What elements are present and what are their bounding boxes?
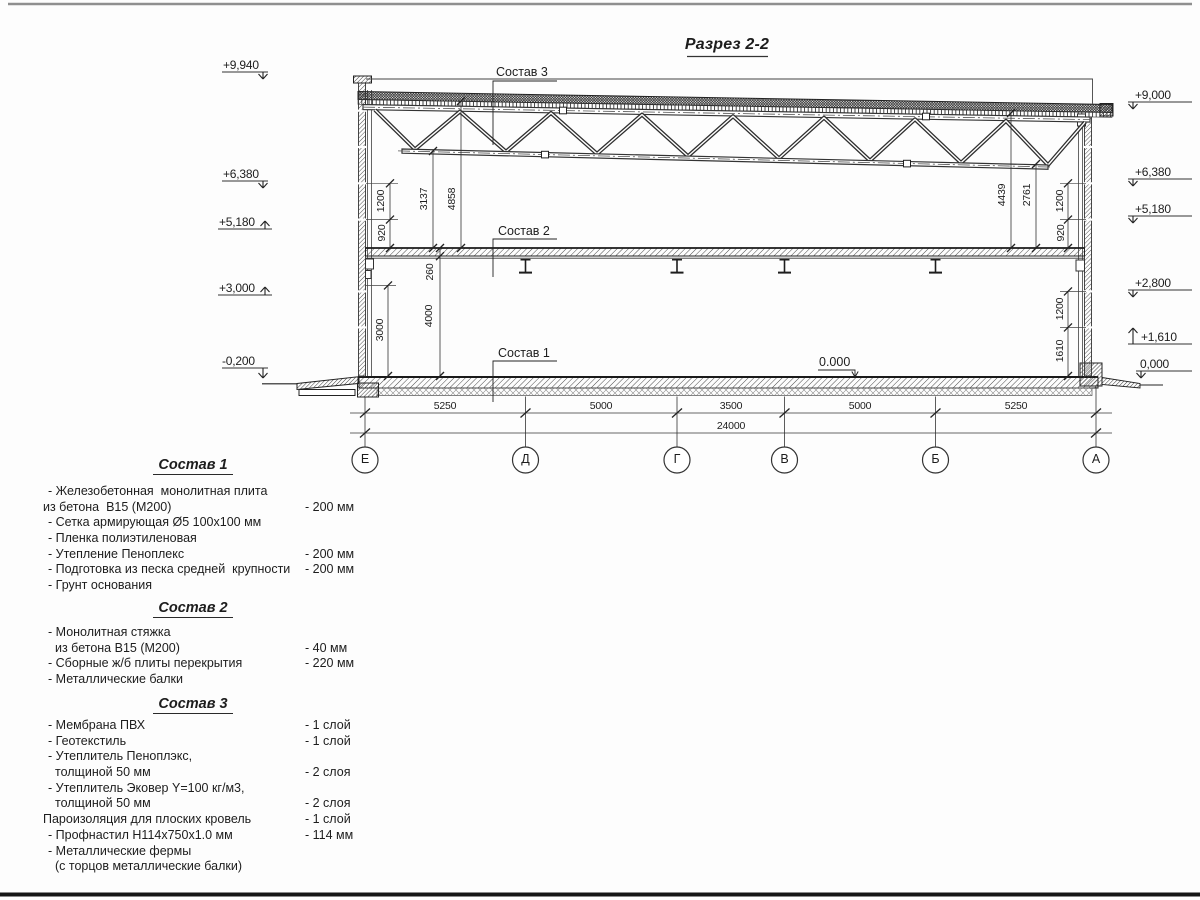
- dim-3137: 3137: [418, 188, 430, 211]
- axis-letter-e: Е: [361, 452, 369, 466]
- dim-right-1200-low: 1200: [1054, 298, 1066, 321]
- elev-right-9000: +9,000: [1135, 88, 1171, 102]
- blueprint-page: Разрез 2-2 ЕДГВБА52505000350050005250240…: [0, 0, 1200, 900]
- elev-left-9940: +9,940: [223, 58, 259, 72]
- material-name: - Грунт основания: [48, 578, 152, 592]
- elev-left-6380: +6,380: [223, 167, 259, 181]
- elev-right-6380: +6,380: [1135, 165, 1171, 179]
- material-name: - Сборные ж/б плиты перекрытия: [48, 656, 242, 670]
- dim-260: 260: [424, 264, 436, 281]
- dim-left-1200: 1200: [375, 190, 387, 213]
- material-value: - 1 слой: [305, 734, 351, 748]
- material-value: - 2 слоя: [305, 796, 350, 810]
- callout-sostav-2: Состав 2: [498, 224, 550, 238]
- dim-4439: 4439: [996, 184, 1008, 207]
- material-item: - Пленка полиэтиленовая: [43, 531, 388, 547]
- material-item: - Металлические фермы: [43, 844, 388, 860]
- materials-heading-2: Состав 2: [153, 600, 232, 618]
- material-item: - Металлические балки: [43, 672, 388, 688]
- axis-letter-d: Д: [521, 452, 529, 466]
- material-item: из бетона В15 (М200)- 40 мм: [43, 641, 388, 657]
- material-item: - Грунт основания: [43, 578, 388, 594]
- material-item: - Утеплитель Пеноплэкс,: [43, 749, 388, 765]
- material-name: - Геотекстиль: [48, 734, 126, 748]
- dim-2761: 2761: [1021, 184, 1033, 207]
- material-item: - Мембрана ПВХ- 1 слой: [43, 718, 388, 734]
- material-name: - Металлические балки: [48, 672, 183, 686]
- material-name: - Профнастил Н114х750х1.0 мм: [48, 828, 233, 842]
- dim-span-g-v: 3500: [720, 400, 743, 412]
- material-item: толщиной 50 мм- 2 слоя: [43, 765, 388, 781]
- material-name: толщиной 50 мм: [55, 765, 151, 779]
- axis-letter-v: В: [780, 452, 788, 466]
- dim-span-e-d: 5250: [434, 400, 457, 412]
- dim-4858: 4858: [446, 188, 458, 211]
- elev-right-0000: 0,000: [1140, 357, 1169, 371]
- material-item: - Сборные ж/б плиты перекрытия- 220 мм: [43, 656, 388, 672]
- material-item: (с торцов металлические балки): [43, 859, 388, 875]
- axis-letter-g: Г: [674, 452, 681, 466]
- material-item: - Подготовка из песка средней крупности-…: [43, 562, 388, 578]
- material-item: - Монолитная стяжка: [43, 625, 388, 641]
- material-name: - Железобетонная монолитная плита: [48, 484, 267, 498]
- callout-sostav-1: Состав 1: [498, 346, 550, 360]
- elev-left-3000: +3,000: [219, 281, 255, 295]
- dim-span-b-a: 5250: [1005, 400, 1028, 412]
- material-name: - Металлические фермы: [48, 844, 191, 858]
- material-item: из бетона В15 (М200)- 200 мм: [43, 500, 388, 516]
- elev-right-2800: +2,800: [1135, 276, 1171, 290]
- dim-4000: 4000: [423, 305, 435, 328]
- material-name: толщиной 50 мм: [55, 796, 151, 810]
- material-name: - Утеплитель Пеноплэкс,: [48, 749, 192, 763]
- material-name: из бетона В15 (М200): [55, 641, 180, 655]
- material-item: - Утеплитель Эковер Y=100 кг/м3,: [43, 781, 388, 797]
- material-value: - 200 мм: [305, 500, 354, 514]
- axis-letter-a: А: [1092, 452, 1100, 466]
- material-name: (с торцов металлические балки): [55, 859, 242, 873]
- material-value: - 1 слой: [305, 812, 351, 826]
- materials-heading-3: Состав 3: [153, 696, 232, 714]
- drawing-title: Разрез 2-2: [685, 36, 769, 54]
- material-name: Пароизоляция для плоских кровель: [43, 812, 251, 826]
- material-name: - Мембрана ПВХ: [48, 718, 145, 732]
- elev-right-1610: +1,610: [1141, 330, 1177, 344]
- material-item: - Сетка армирующая Ø5 100х100 мм: [43, 515, 388, 531]
- material-name: из бетона В15 (М200): [43, 500, 171, 514]
- material-value: - 114 мм: [305, 828, 353, 842]
- material-item: - Геотекстиль- 1 слой: [43, 734, 388, 750]
- dim-right-1200-top: 1200: [1054, 190, 1066, 213]
- material-item: Пароизоляция для плоских кровель- 1 слой: [43, 812, 388, 828]
- material-value: - 1 слой: [305, 718, 351, 732]
- materials-heading-1: Состав 1: [153, 457, 232, 475]
- material-name: - Утеплитель Эковер Y=100 кг/м3,: [48, 781, 244, 795]
- material-value: - 2 слоя: [305, 765, 350, 779]
- material-value: - 220 мм: [305, 656, 354, 670]
- material-name: - Пленка полиэтиленовая: [48, 531, 197, 545]
- material-name: - Сетка армирующая Ø5 100х100 мм: [48, 515, 261, 529]
- material-value: - 200 мм: [305, 562, 354, 576]
- material-item: - Утепление Пеноплекс- 200 мм: [43, 547, 388, 563]
- dim-left-920: 920: [376, 225, 388, 242]
- material-item: толщиной 50 мм- 2 слоя: [43, 796, 388, 812]
- elev-left-5180: +5,180: [219, 215, 255, 229]
- level-zero-inline: 0.000: [819, 355, 850, 369]
- dim-total: 24000: [717, 420, 745, 432]
- material-name: - Утепление Пеноплекс: [48, 547, 184, 561]
- elev-left-0200: -0,200: [222, 354, 255, 368]
- material-name: - Подготовка из песка средней крупности: [48, 562, 290, 576]
- dim-span-d-g: 5000: [590, 400, 613, 412]
- material-value: - 200 мм: [305, 547, 354, 561]
- callout-sostav-3: Состав 3: [496, 65, 548, 79]
- axis-letter-b: Б: [931, 452, 939, 466]
- dim-right-1610: 1610: [1054, 340, 1066, 363]
- material-item: - Железобетонная монолитная плита: [43, 484, 388, 500]
- dim-right-920: 920: [1055, 225, 1067, 242]
- material-name: - Монолитная стяжка: [48, 625, 171, 639]
- material-item: - Профнастил Н114х750х1.0 мм- 114 мм: [43, 828, 388, 844]
- material-value: - 40 мм: [305, 641, 347, 655]
- dim-span-v-b: 5000: [849, 400, 872, 412]
- dim-3000: 3000: [374, 319, 386, 342]
- elev-right-5180: +5,180: [1135, 202, 1171, 216]
